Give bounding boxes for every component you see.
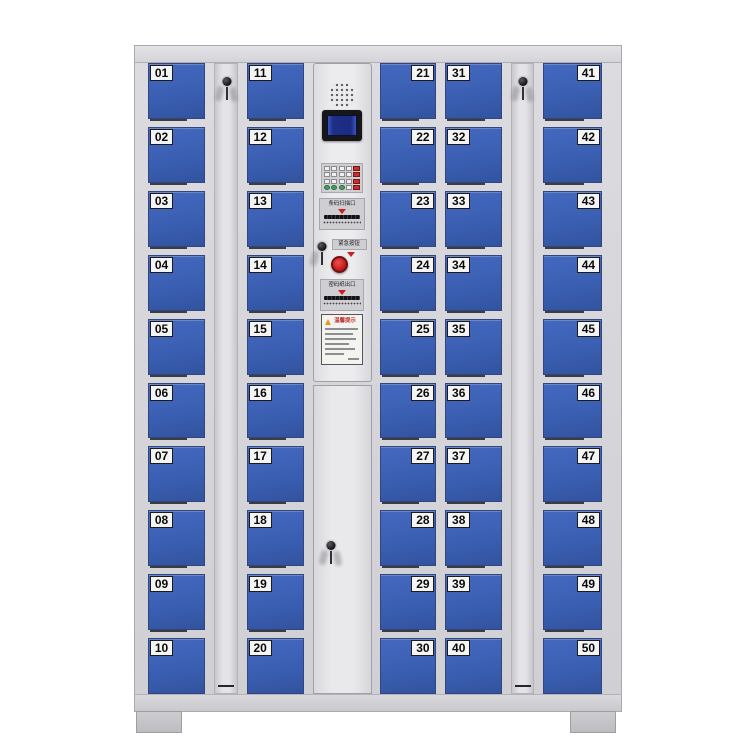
locker-cell: 26 — [380, 383, 436, 439]
locker-cell: 38 — [445, 510, 502, 566]
locker-number-plate: 32 — [447, 129, 470, 145]
keypad-key[interactable] — [339, 179, 345, 184]
locker-column-01-10: 01020304050607080910 — [148, 63, 205, 694]
locker-number-plate: 24 — [411, 257, 434, 273]
locker-cell: 27 — [380, 446, 436, 502]
locker-door-26[interactable]: 26 — [380, 383, 436, 439]
locker-cell: 28 — [380, 510, 436, 566]
locker-cabinet: 01020304050607080910 1112131415161718192… — [134, 45, 622, 712]
locker-door-50[interactable]: 50 — [543, 638, 602, 694]
locker-cell: 10 — [148, 638, 205, 694]
locker-number-plate: 39 — [447, 576, 470, 592]
keypad-key[interactable] — [346, 185, 352, 190]
locker-number-plate: 34 — [447, 257, 470, 273]
notice-sticker: 温馨提示 — [321, 314, 363, 365]
outlet-label: 密码纸出口 — [329, 282, 356, 288]
red-arrow-down-icon — [338, 290, 346, 295]
locker-door-28[interactable]: 28 — [380, 510, 436, 566]
red-arrow-down-icon — [347, 252, 355, 257]
keypad-red-key[interactable] — [353, 185, 360, 190]
locker-number-plate: 44 — [577, 257, 600, 273]
keypad-key[interactable] — [331, 166, 337, 171]
locker-grid: 01020304050607080910 1112131415161718192… — [148, 63, 602, 694]
locker-door-29[interactable]: 29 — [380, 574, 436, 630]
emergency-label: 紧急按钮 — [332, 239, 367, 250]
keypad-key[interactable] — [324, 172, 330, 177]
locker-cell: 09 — [148, 574, 205, 630]
locker-cell: 31 — [445, 63, 502, 119]
locker-cell: 23 — [380, 191, 436, 247]
locker-number-plate: 29 — [411, 576, 434, 592]
locker-cell: 18 — [247, 510, 304, 566]
locker-door-34[interactable]: 34 — [445, 255, 502, 311]
locker-door-10[interactable]: 10 — [148, 638, 205, 694]
locker-door-37[interactable]: 37 — [445, 446, 502, 502]
locker-cell: 47 — [543, 446, 602, 502]
locker-cell: 46 — [543, 383, 602, 439]
keypad-red-key[interactable] — [353, 179, 360, 184]
power-lock-row: 紧急按钮 — [314, 236, 371, 280]
locker-number-plate: 08 — [150, 512, 173, 528]
locker-door-45[interactable]: 45 — [543, 319, 602, 375]
notice-title: 温馨提示 — [334, 318, 356, 324]
locker-number-plate: 01 — [150, 65, 173, 81]
locker-door-22[interactable]: 22 — [380, 127, 436, 183]
locker-door-17[interactable]: 17 — [247, 446, 304, 502]
locker-cell: 16 — [247, 383, 304, 439]
scanner-label: 条码扫描口 — [329, 201, 356, 207]
locker-cell: 29 — [380, 574, 436, 630]
locker-cell: 05 — [148, 319, 205, 375]
locker-number-plate: 38 — [447, 512, 470, 528]
locker-cell: 06 — [148, 383, 205, 439]
locker-cell: 39 — [445, 574, 502, 630]
keypad-red-key[interactable] — [353, 172, 360, 177]
locker-cell: 02 — [148, 127, 205, 183]
locker-number-plate: 05 — [150, 321, 173, 337]
locker-number-plate: 04 — [150, 257, 173, 273]
locker-number-plate: 18 — [249, 512, 272, 528]
locker-door-05[interactable]: 05 — [148, 319, 205, 375]
cabinet-top-frame — [135, 46, 621, 63]
locker-door-42[interactable]: 42 — [543, 127, 602, 183]
locker-number-plate: 07 — [150, 448, 173, 464]
keypad-key[interactable] — [324, 179, 330, 184]
locker-cell: 04 — [148, 255, 205, 311]
cabinet-foot — [136, 711, 182, 733]
locker-door-07[interactable]: 07 — [148, 446, 205, 502]
locker-number-plate: 02 — [150, 129, 173, 145]
power-keyhole-icon[interactable] — [316, 242, 328, 272]
locker-column-41-50: 41424344454647484950 — [543, 63, 602, 694]
locker-number-plate: 09 — [150, 576, 173, 592]
locker-number-plate: 28 — [411, 512, 434, 528]
locker-number-plate: 41 — [577, 65, 600, 81]
locker-number-plate: 22 — [411, 129, 434, 145]
locker-cell: 20 — [247, 638, 304, 694]
locker-door-21[interactable]: 21 — [380, 63, 436, 119]
locker-door-20[interactable]: 20 — [247, 638, 304, 694]
locker-cell: 11 — [247, 63, 304, 119]
red-arrow-down-icon — [338, 209, 346, 214]
locker-door-43[interactable]: 43 — [543, 191, 602, 247]
locker-number-plate: 50 — [577, 640, 600, 656]
locker-door-35[interactable]: 35 — [445, 319, 502, 375]
keypad-red-key[interactable] — [353, 166, 360, 171]
locker-door-18[interactable]: 18 — [247, 510, 304, 566]
locker-cell: 17 — [247, 446, 304, 502]
locker-number-plate: 43 — [577, 193, 600, 209]
locker-cell: 49 — [543, 574, 602, 630]
keypad-key[interactable] — [346, 179, 352, 184]
locker-door-32[interactable]: 32 — [445, 127, 502, 183]
locker-door-27[interactable]: 27 — [380, 446, 436, 502]
lcd-display — [322, 110, 362, 141]
locker-number-plate: 47 — [577, 448, 600, 464]
fine-print-row — [323, 302, 361, 305]
locker-number-plate: 12 — [249, 129, 272, 145]
control-panel: 条码扫描口 紧急按钮 — [313, 63, 372, 382]
locker-cell: 45 — [543, 319, 602, 375]
strip-slot — [218, 685, 234, 687]
locker-number-plate: 15 — [249, 321, 272, 337]
locker-door-46[interactable]: 46 — [543, 383, 602, 439]
locker-door-49[interactable]: 49 — [543, 574, 602, 630]
locker-door-30[interactable]: 30 — [380, 638, 436, 694]
service-door-keyhole-icon[interactable] — [325, 541, 337, 571]
keypad-key[interactable] — [346, 172, 352, 177]
keypad-key[interactable] — [339, 172, 345, 177]
locker-number-plate: 26 — [411, 385, 434, 401]
locker-door-48[interactable]: 48 — [543, 510, 602, 566]
locker-door-08[interactable]: 08 — [148, 510, 205, 566]
locker-cell: 12 — [247, 127, 304, 183]
locker-number-plate: 19 — [249, 576, 272, 592]
locker-column-21-30: 21222324252627282930 — [380, 63, 436, 694]
locker-cell: 32 — [445, 127, 502, 183]
locker-door-24[interactable]: 24 — [380, 255, 436, 311]
locker-number-plate: 48 — [577, 512, 600, 528]
product-photo: 01020304050607080910 1112131415161718192… — [0, 0, 750, 750]
warning-triangle-icon — [325, 319, 331, 325]
locker-door-36[interactable]: 36 — [445, 383, 502, 439]
locker-number-plate: 40 — [447, 640, 470, 656]
notice-body-lines — [325, 328, 359, 355]
locker-number-plate: 42 — [577, 129, 600, 145]
locker-cell: 35 — [445, 319, 502, 375]
locker-door-25[interactable]: 25 — [380, 319, 436, 375]
locker-door-41[interactable]: 41 — [543, 63, 602, 119]
locker-door-44[interactable]: 44 — [543, 255, 602, 311]
locker-cell: 30 — [380, 638, 436, 694]
keypad-key[interactable] — [331, 185, 337, 190]
locker-number-plate: 14 — [249, 257, 272, 273]
locker-door-47[interactable]: 47 — [543, 446, 602, 502]
locker-number-plate: 46 — [577, 385, 600, 401]
locker-cell: 13 — [247, 191, 304, 247]
locker-door-23[interactable]: 23 — [380, 191, 436, 247]
locker-number-plate: 30 — [411, 640, 434, 656]
locker-number-plate: 45 — [577, 321, 600, 337]
locker-door-33[interactable]: 33 — [445, 191, 502, 247]
keypad-key[interactable] — [324, 185, 330, 190]
locker-cell: 07 — [148, 446, 205, 502]
locker-door-04[interactable]: 04 — [148, 255, 205, 311]
locker-cell: 48 — [543, 510, 602, 566]
barcode-scanner-module[interactable]: 条码扫描口 — [319, 198, 365, 230]
locker-cell: 03 — [148, 191, 205, 247]
lcd-screen — [327, 115, 357, 136]
keypad-key[interactable] — [331, 172, 337, 177]
locker-cell: 22 — [380, 127, 436, 183]
keypad-key[interactable] — [339, 166, 345, 171]
locker-number-plate: 11 — [249, 65, 272, 81]
password-ticket-outlet[interactable]: 密码纸出口 — [320, 279, 364, 311]
cabinet-kick-plate — [135, 694, 621, 711]
locker-number-plate: 21 — [411, 65, 434, 81]
locker-number-plate: 16 — [249, 385, 272, 401]
scanner-slot[interactable] — [324, 215, 360, 219]
keypad-key[interactable] — [339, 185, 345, 190]
strip-slot — [515, 685, 531, 687]
locker-cell: 40 — [445, 638, 502, 694]
locker-number-plate: 33 — [447, 193, 470, 209]
keyhole-icon[interactable] — [221, 77, 233, 107]
outlet-slot[interactable] — [324, 296, 360, 300]
locker-door-03[interactable]: 03 — [148, 191, 205, 247]
locker-cell: 01 — [148, 63, 205, 119]
speaker-grille-icon — [329, 82, 355, 108]
locker-cell: 08 — [148, 510, 205, 566]
emergency-red-button[interactable] — [331, 256, 348, 273]
locker-number-plate: 35 — [447, 321, 470, 337]
cabinet-foot — [570, 711, 616, 733]
locker-door-12[interactable]: 12 — [247, 127, 304, 183]
locker-number-plate: 03 — [150, 193, 173, 209]
locker-cell: 14 — [247, 255, 304, 311]
keypad-key[interactable] — [331, 179, 337, 184]
locker-number-plate: 06 — [150, 385, 173, 401]
locker-cell: 34 — [445, 255, 502, 311]
locker-number-plate: 25 — [411, 321, 434, 337]
locker-door-06[interactable]: 06 — [148, 383, 205, 439]
locker-cell: 44 — [543, 255, 602, 311]
locker-cell: 37 — [445, 446, 502, 502]
locker-column-11-20: 11121314151617181920 — [247, 63, 304, 694]
locker-number-plate: 13 — [249, 193, 272, 209]
locker-door-13[interactable]: 13 — [247, 191, 304, 247]
locker-door-38[interactable]: 38 — [445, 510, 502, 566]
locker-door-40[interactable]: 40 — [445, 638, 502, 694]
locker-number-plate: 17 — [249, 448, 272, 464]
locker-cell: 36 — [445, 383, 502, 439]
locker-door-19[interactable]: 19 — [247, 574, 304, 630]
locker-door-09[interactable]: 09 — [148, 574, 205, 630]
locker-door-16[interactable]: 16 — [247, 383, 304, 439]
keypad-key[interactable] — [324, 166, 330, 171]
locker-door-11[interactable]: 11 — [247, 63, 304, 119]
locker-number-plate: 27 — [411, 448, 434, 464]
locker-door-15[interactable]: 15 — [247, 319, 304, 375]
locker-number-plate: 10 — [150, 640, 173, 656]
locker-number-plate: 31 — [447, 65, 470, 81]
service-door[interactable] — [313, 385, 372, 694]
locker-cell: 25 — [380, 319, 436, 375]
locker-cell: 43 — [543, 191, 602, 247]
locker-cell: 42 — [543, 127, 602, 183]
locker-number-plate: 36 — [447, 385, 470, 401]
locker-cell: 50 — [543, 638, 602, 694]
locker-number-plate: 20 — [249, 640, 272, 656]
notice-signature-line — [348, 358, 359, 360]
locker-door-39[interactable]: 39 — [445, 574, 502, 630]
locker-cell: 24 — [380, 255, 436, 311]
locker-cell: 33 — [445, 191, 502, 247]
keyhole-icon[interactable] — [517, 77, 529, 107]
locker-cell: 41 — [543, 63, 602, 119]
locker-door-02[interactable]: 02 — [148, 127, 205, 183]
locker-door-01[interactable]: 01 — [148, 63, 205, 119]
locker-door-14[interactable]: 14 — [247, 255, 304, 311]
control-column: 条码扫描口 紧急按钮 — [313, 63, 372, 694]
locker-number-plate: 49 — [577, 576, 600, 592]
locker-cell: 15 — [247, 319, 304, 375]
locker-cell: 19 — [247, 574, 304, 630]
keypad[interactable] — [321, 163, 363, 193]
locker-number-plate: 37 — [447, 448, 470, 464]
locker-cell: 21 — [380, 63, 436, 119]
keypad-key[interactable] — [346, 166, 352, 171]
locker-number-plate: 23 — [411, 193, 434, 209]
locker-column-31-40: 31323334353637383940 — [445, 63, 502, 694]
key-strip-left — [214, 63, 238, 694]
key-strip-right — [511, 63, 534, 694]
fine-print-row — [323, 221, 361, 224]
locker-door-31[interactable]: 31 — [445, 63, 502, 119]
